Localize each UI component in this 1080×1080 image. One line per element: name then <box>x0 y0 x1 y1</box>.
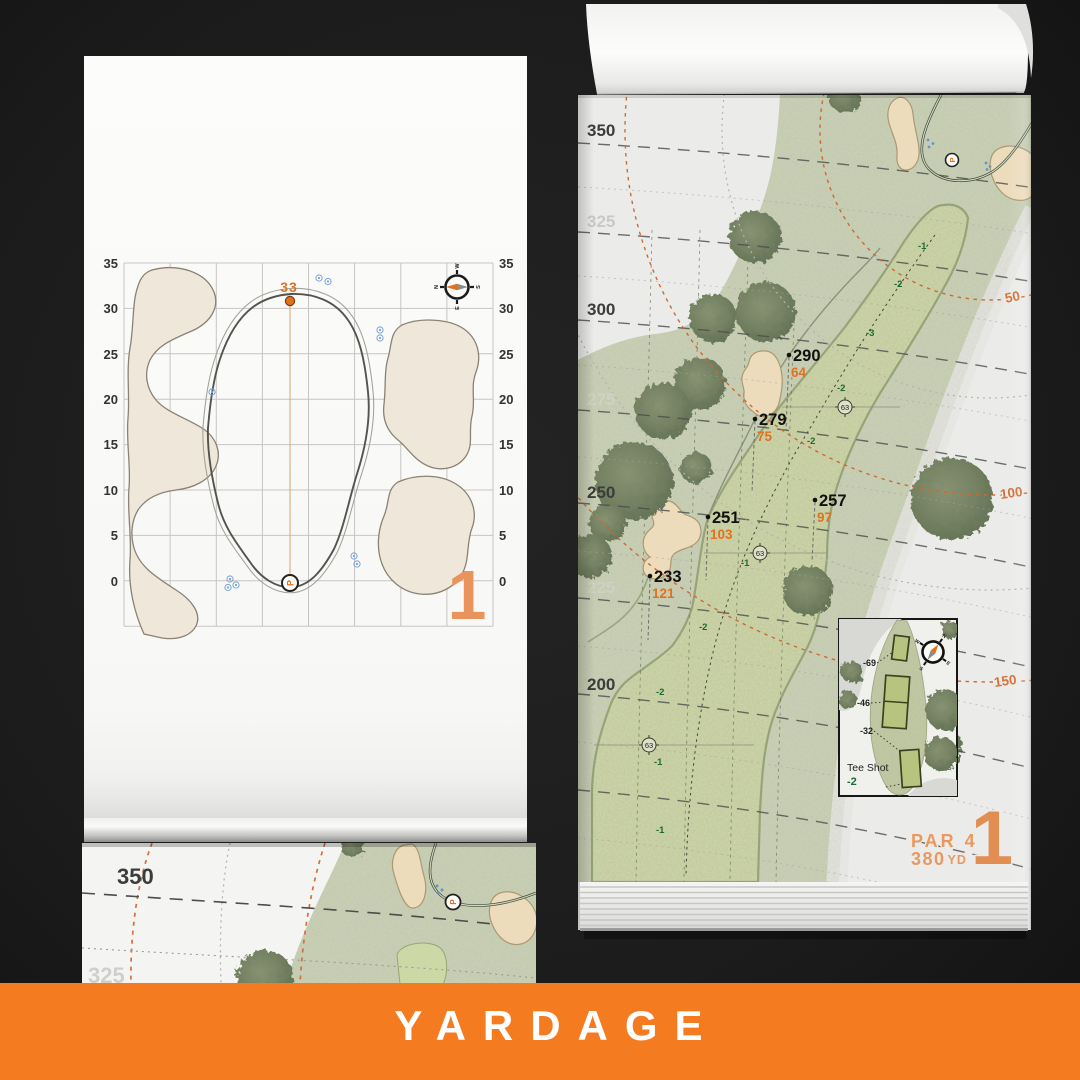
svg-text:63: 63 <box>645 741 653 750</box>
svg-text:20: 20 <box>104 392 118 407</box>
svg-text:15: 15 <box>499 437 513 452</box>
svg-text:-2: -2 <box>699 622 707 633</box>
svg-text:97: 97 <box>817 510 832 525</box>
svg-text:251: 251 <box>712 509 740 527</box>
svg-text:S: S <box>476 285 482 289</box>
svg-text:-69: -69 <box>863 658 876 668</box>
svg-text:-2: -2 <box>656 687 664 698</box>
svg-text:257: 257 <box>819 492 847 510</box>
svg-text:-1: -1 <box>741 558 750 569</box>
svg-text:350: 350 <box>117 864 154 889</box>
svg-text:121: 121 <box>652 586 675 601</box>
svg-text:30: 30 <box>104 301 118 316</box>
svg-text:-3: -3 <box>866 328 874 339</box>
svg-text:W: W <box>455 263 461 269</box>
svg-text:103: 103 <box>710 527 733 542</box>
svg-text:0: 0 <box>499 574 506 589</box>
svg-text:30: 30 <box>499 301 513 316</box>
svg-text:-32: -32 <box>860 726 873 736</box>
svg-text:P: P <box>286 580 296 586</box>
svg-text:-46: -46 <box>857 698 870 708</box>
svg-text:N: N <box>434 285 440 289</box>
svg-text:-2: -2 <box>847 776 857 788</box>
svg-text:1: 1 <box>448 556 487 634</box>
svg-text:YARDAGE: YARDAGE <box>394 1002 719 1049</box>
svg-text:35: 35 <box>499 256 513 271</box>
svg-text:20: 20 <box>499 392 513 407</box>
svg-text:63: 63 <box>841 403 849 412</box>
svg-text:15: 15 <box>104 437 118 452</box>
svg-text:10: 10 <box>499 483 513 498</box>
svg-text:-1: -1 <box>918 241 927 252</box>
svg-text:P: P <box>948 157 957 162</box>
svg-text:63: 63 <box>756 549 764 558</box>
svg-text:E: E <box>455 306 461 310</box>
svg-text:279: 279 <box>759 411 787 429</box>
svg-text:10: 10 <box>104 483 118 498</box>
svg-text:PAR 4: PAR 4 <box>911 831 978 851</box>
svg-text:0: 0 <box>111 574 118 589</box>
svg-text:-2: -2 <box>807 436 815 447</box>
svg-text:-2: -2 <box>837 383 845 394</box>
svg-text:5: 5 <box>499 528 506 543</box>
svg-text:-1: -1 <box>656 825 665 836</box>
svg-text:75: 75 <box>757 429 773 444</box>
svg-text:233: 233 <box>654 568 682 586</box>
svg-text:Tee Shot: Tee Shot <box>847 762 889 774</box>
svg-text:-2: -2 <box>894 279 902 290</box>
svg-text:64: 64 <box>791 365 807 380</box>
svg-text:33: 33 <box>280 279 298 295</box>
svg-text:290: 290 <box>793 347 821 365</box>
svg-text:25: 25 <box>104 347 118 362</box>
svg-text:5: 5 <box>111 528 118 543</box>
svg-text:P: P <box>449 899 458 905</box>
svg-text:35: 35 <box>104 256 118 271</box>
svg-text:-1: -1 <box>654 757 663 768</box>
svg-text:25: 25 <box>499 347 513 362</box>
